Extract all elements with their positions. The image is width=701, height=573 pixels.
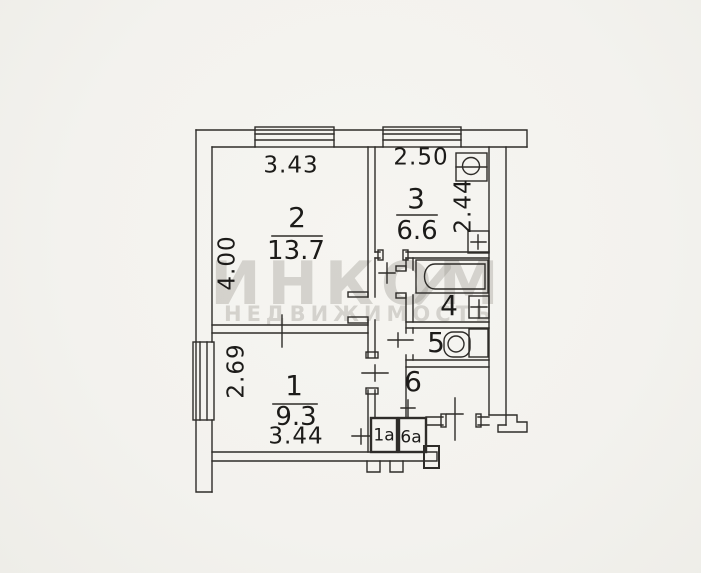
room-6a-number: 6а	[400, 430, 421, 447]
room-4-number: 4	[440, 292, 458, 320]
dimension-kitchen-depth: 2.44	[453, 178, 476, 233]
room-3-area: 6.6	[396, 218, 437, 244]
room-1-number: 1	[285, 372, 303, 400]
dimension-kitchen-width: 2.50	[393, 147, 448, 170]
room-2-area: 13.7	[267, 238, 325, 264]
entrance-step	[489, 415, 527, 432]
floor-plan-drawing	[0, 0, 701, 573]
room-3-number: 3	[407, 185, 425, 213]
stove-icon	[456, 153, 487, 181]
bath-basin-icon	[469, 296, 489, 318]
dimension-room2-width: 3.43	[263, 155, 318, 178]
dimension-room2-depth: 4.00	[217, 235, 240, 290]
floor-plan-page: ИНКОМ НЕДВИЖИМОСТЬ	[0, 0, 701, 573]
room-2-number: 2	[288, 204, 306, 232]
room-1a-number: 1а	[373, 428, 394, 445]
room-5-number: 5	[427, 329, 445, 357]
kitchen-sink-icon	[468, 231, 489, 253]
dimension-room1-depth: 2.69	[226, 343, 249, 398]
room-1-area: 9.3	[275, 404, 316, 430]
toilet-icon	[444, 329, 488, 357]
room-6-number: 6	[404, 368, 422, 396]
